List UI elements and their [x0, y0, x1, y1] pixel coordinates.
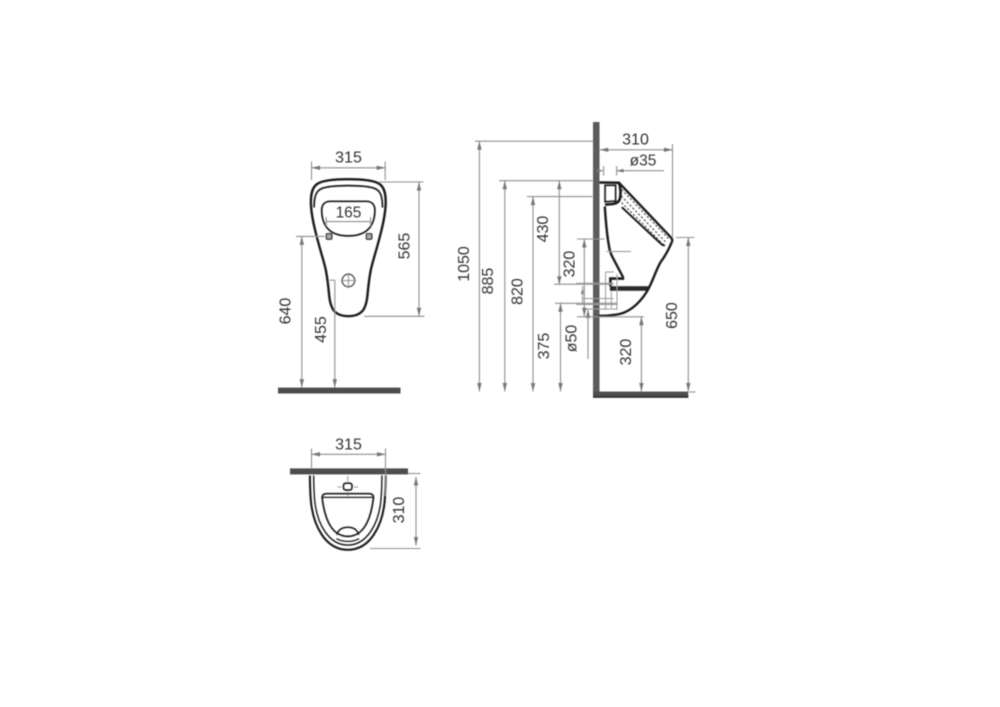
svg-text:320: 320: [562, 251, 579, 278]
svg-text:650: 650: [664, 302, 681, 329]
svg-text:ø35: ø35: [630, 153, 657, 170]
svg-text:375: 375: [536, 333, 553, 360]
svg-text:310: 310: [622, 132, 649, 149]
svg-text:165: 165: [336, 205, 362, 222]
svg-text:310: 310: [391, 497, 408, 524]
svg-text:455: 455: [313, 316, 330, 343]
svg-text:820: 820: [510, 278, 527, 305]
svg-text:315: 315: [335, 437, 362, 454]
svg-text:1050: 1050: [456, 246, 473, 282]
svg-text:430: 430: [535, 216, 552, 243]
svg-text:ø50: ø50: [564, 325, 581, 353]
svg-text:315: 315: [335, 150, 362, 167]
svg-text:885: 885: [480, 268, 497, 295]
svg-text:565: 565: [397, 233, 414, 260]
svg-text:320: 320: [618, 339, 635, 366]
svg-text:640: 640: [278, 298, 295, 325]
